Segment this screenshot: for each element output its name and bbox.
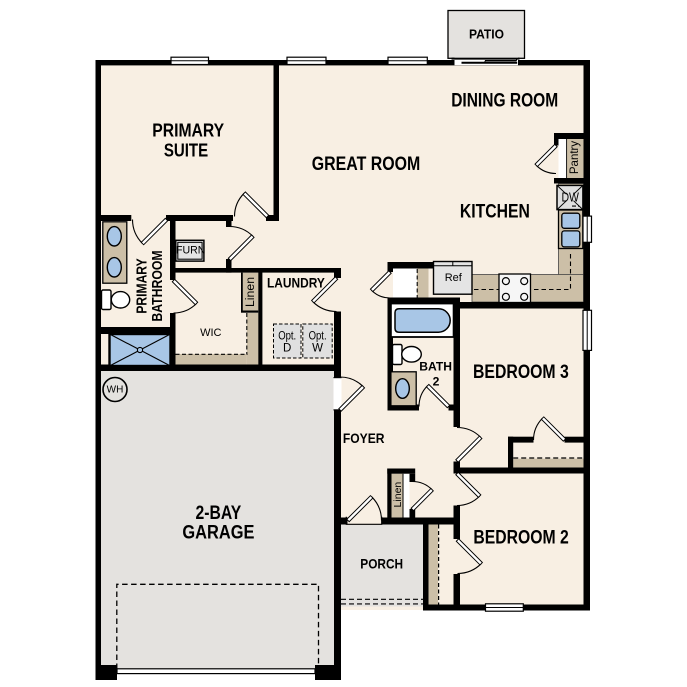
svg-text:DW: DW xyxy=(561,190,579,205)
svg-text:GREAT ROOM: GREAT ROOM xyxy=(312,153,420,175)
svg-text:PRIMARY: PRIMARY xyxy=(135,258,151,313)
svg-text:WH: WH xyxy=(107,385,124,396)
svg-text:DINING ROOM: DINING ROOM xyxy=(451,89,558,111)
svg-text:KITCHEN: KITCHEN xyxy=(460,201,530,223)
svg-text:BATHROOM: BATHROOM xyxy=(150,250,166,321)
svg-text:Linen: Linen xyxy=(392,482,404,508)
svg-text:2: 2 xyxy=(433,374,440,388)
svg-text:BATH: BATH xyxy=(419,359,452,373)
svg-text:SUITE: SUITE xyxy=(164,139,208,160)
svg-text:PRIMARY: PRIMARY xyxy=(152,120,224,141)
svg-text:BEDROOM 2: BEDROOM 2 xyxy=(473,526,569,548)
svg-text:Pantry: Pantry xyxy=(569,141,581,174)
svg-text:Linen: Linen xyxy=(243,277,257,307)
svg-text:D: D xyxy=(283,343,291,355)
svg-text:Opt.: Opt. xyxy=(309,331,327,343)
svg-text:BEDROOM 3: BEDROOM 3 xyxy=(473,361,569,383)
svg-text:PORCH: PORCH xyxy=(360,555,403,571)
svg-text:PATIO: PATIO xyxy=(469,26,504,41)
svg-text:Ref: Ref xyxy=(445,272,463,284)
svg-text:Opt.: Opt. xyxy=(278,331,296,343)
svg-text:WIC: WIC xyxy=(200,327,221,339)
svg-text:W: W xyxy=(312,343,323,355)
svg-text:FOYER: FOYER xyxy=(343,431,385,446)
svg-text:GARAGE: GARAGE xyxy=(182,521,254,543)
svg-text:LAUNDRY: LAUNDRY xyxy=(267,275,325,290)
svg-text:FURN: FURN xyxy=(176,245,205,257)
